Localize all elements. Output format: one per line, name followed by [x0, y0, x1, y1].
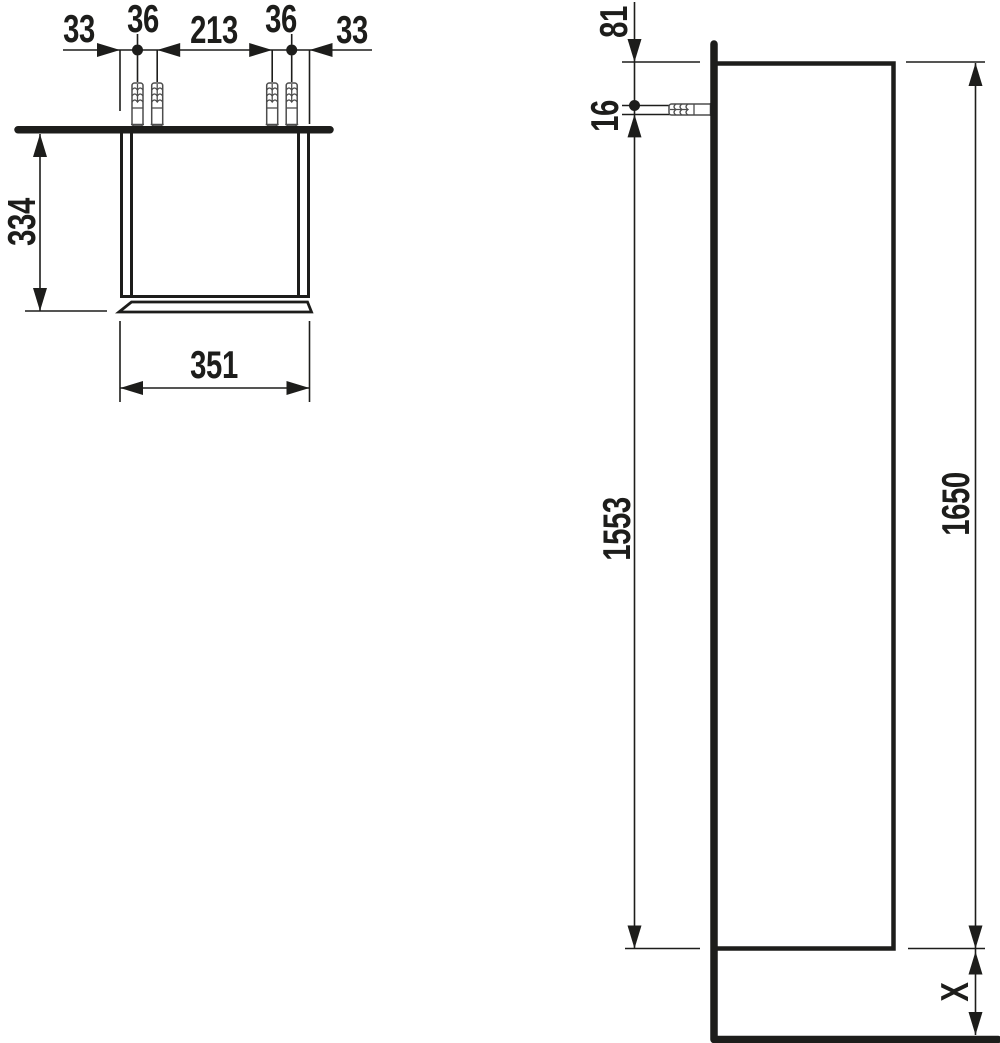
dim-label-width: 351 — [190, 344, 238, 387]
dim-label-hole-pair-left: 36 — [127, 0, 159, 41]
arrowhead — [120, 381, 143, 395]
arrowhead — [628, 926, 642, 949]
dim-label-height: 1650 — [935, 472, 978, 536]
arrowhead — [628, 39, 642, 62]
arrowhead — [157, 43, 180, 57]
arrowhead — [33, 288, 47, 311]
arrowhead — [310, 43, 333, 57]
technical-drawing-page: 33 36 213 36 33 334 351 81 — [0, 0, 1000, 1043]
cabinet-door-panel — [119, 302, 312, 312]
arrowhead — [287, 381, 310, 395]
arrowhead — [249, 43, 272, 57]
wall-plug — [669, 103, 712, 116]
top-view: 33 36 213 36 33 334 351 — [1, 0, 372, 402]
arrowhead — [969, 926, 983, 949]
wall-plug — [266, 83, 279, 126]
arrowhead — [97, 43, 120, 57]
cabinet-body — [716, 64, 894, 949]
dim-label-bottom-clearance: X — [934, 982, 977, 1002]
dim-label-hole: 16 — [584, 100, 627, 132]
dimension-point-dot — [286, 45, 297, 56]
cabinet-installation-drawing: 33 36 213 36 33 334 351 81 — [0, 0, 1000, 1043]
wall-plug — [131, 83, 144, 126]
wall-plug — [151, 83, 164, 126]
wall-plug — [285, 83, 298, 126]
arrowhead — [33, 134, 47, 157]
dim-label-hole-to-bottom: 1553 — [596, 497, 639, 561]
side-view: 81 16 1553 1650 X — [584, 2, 998, 1040]
dimension-point-dot — [132, 45, 143, 56]
arrowhead — [969, 63, 983, 86]
wall-floor-line — [714, 44, 998, 1040]
dimension-point-dot — [629, 100, 640, 111]
dim-label-hole-spacing-center: 213 — [190, 9, 238, 52]
dim-label-edge-to-hole-right: 33 — [336, 9, 368, 52]
dim-label-edge-to-hole-left: 33 — [63, 8, 95, 51]
dim-label-depth: 334 — [1, 198, 44, 246]
dim-label-hole-pair-right: 36 — [265, 0, 297, 41]
arrowhead — [969, 1012, 983, 1035]
dim-label-top-to-hole: 81 — [593, 6, 636, 38]
arrowhead — [969, 952, 983, 975]
arrowhead — [628, 114, 642, 137]
